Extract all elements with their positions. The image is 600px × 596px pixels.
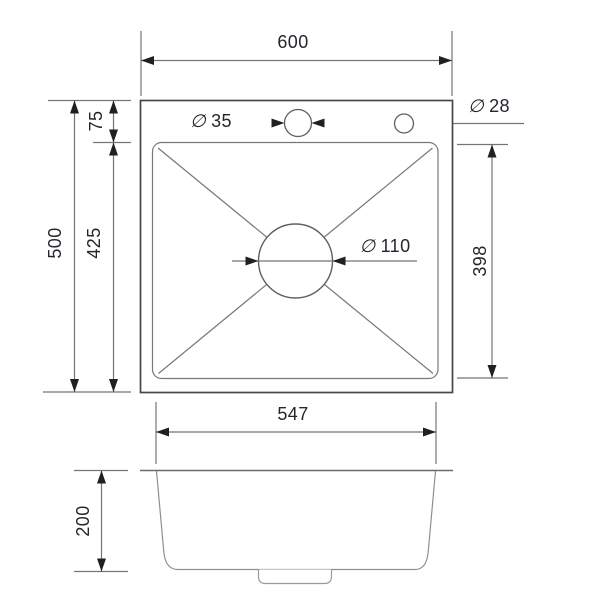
dim-label-bowl-inner-length: 398 xyxy=(460,241,500,281)
bowl-profile xyxy=(157,471,436,570)
faucet-hole-circle xyxy=(285,110,312,137)
dim-label-overall-depth: 500 xyxy=(35,223,75,263)
arrow-547-left xyxy=(156,428,169,437)
drain-fitting-profile xyxy=(259,570,332,584)
arrow-547-right xyxy=(423,428,436,437)
dim-label-accessory-hole: ∅ 28 xyxy=(459,96,519,116)
arrow-600-right xyxy=(439,56,452,65)
accessory-hole-circle xyxy=(395,114,414,133)
diameter-symbol: ∅ xyxy=(360,237,376,255)
arrow-398-top xyxy=(488,145,497,158)
dim-label-bowl-outer-width: 547 xyxy=(263,404,323,423)
dim-label-bowl-depth: 200 xyxy=(63,501,103,541)
sink-technical-drawing: 600 500 75 425 398 ∅ 35 ∅ 28 ∅ 110 547 2… xyxy=(0,0,600,596)
arrow-200-bottom xyxy=(97,559,106,572)
drain-hole-value: 110 xyxy=(381,237,411,255)
dim-label-overall-width: 600 xyxy=(263,32,323,51)
dim-label-bowl-to-front: 425 xyxy=(74,223,114,263)
diameter-symbol: ∅ xyxy=(190,112,206,130)
arrow-425-top xyxy=(109,143,118,156)
arrow-500-bottom xyxy=(70,379,79,392)
dim-label-drain-hole: ∅ 110 xyxy=(350,236,420,256)
arrow-600-left xyxy=(141,56,154,65)
diameter-symbol: ∅ xyxy=(468,97,484,115)
dim-label-faucet-hole: ∅ 35 xyxy=(181,111,241,131)
faucet-hole-value: 35 xyxy=(211,112,232,130)
arrow-200-top xyxy=(97,471,106,484)
arrow-425-bottom xyxy=(109,379,118,392)
accessory-hole-value: 28 xyxy=(489,97,510,115)
front-view xyxy=(140,471,453,584)
arrow-398-bottom xyxy=(488,365,497,378)
dim-label-edge-to-bowl: 75 xyxy=(76,101,116,141)
